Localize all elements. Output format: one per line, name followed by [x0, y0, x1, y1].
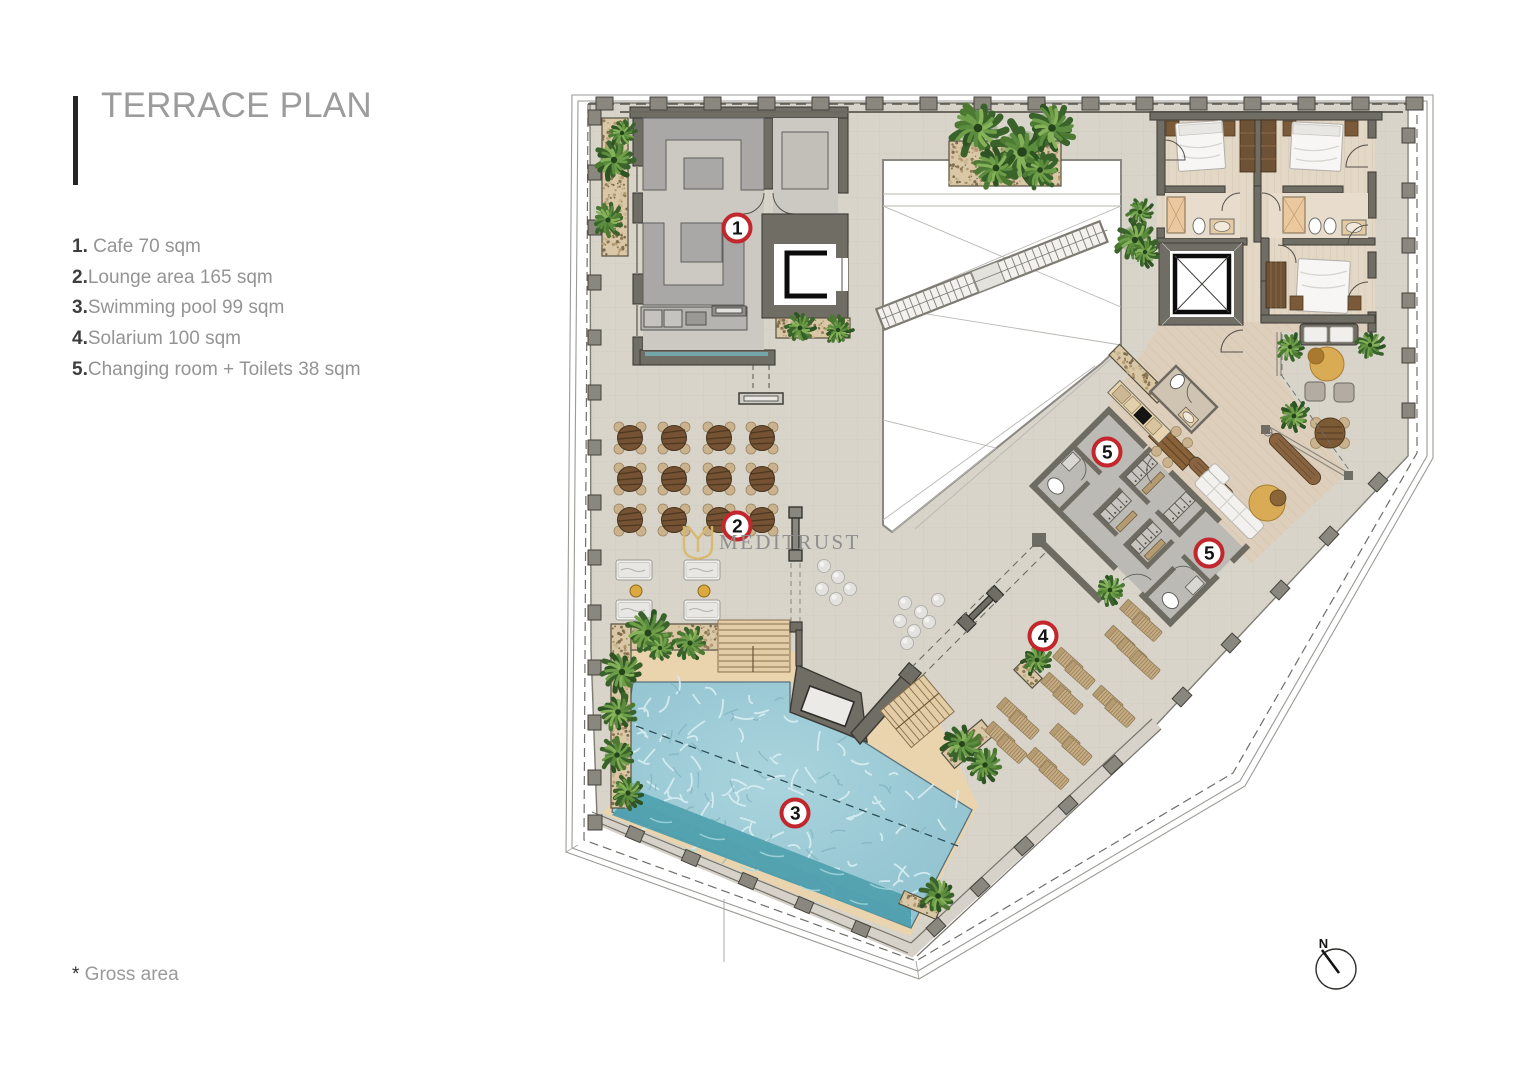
svg-text:MEDITRUST: MEDITRUST [719, 530, 861, 554]
